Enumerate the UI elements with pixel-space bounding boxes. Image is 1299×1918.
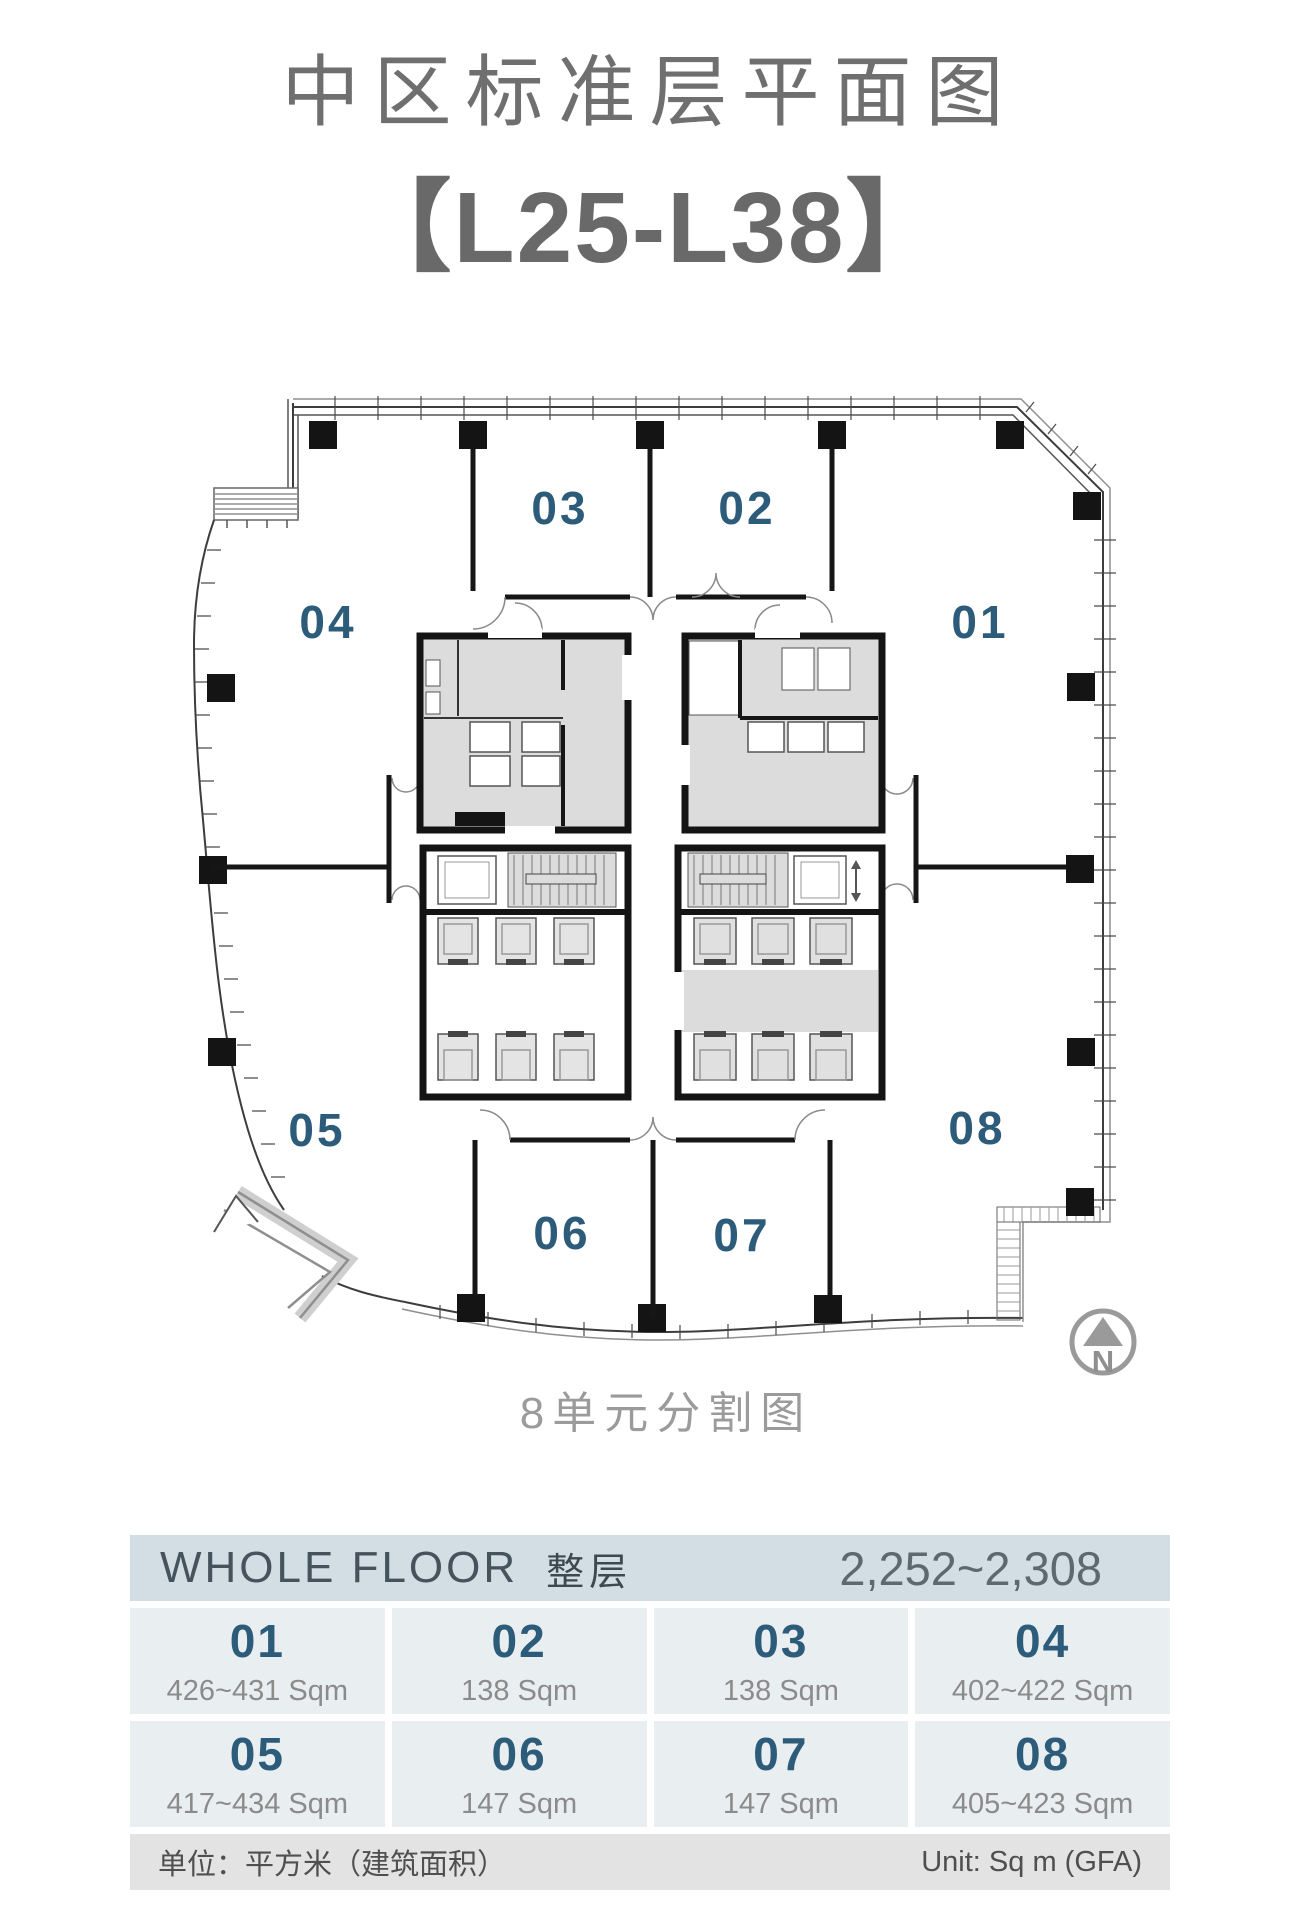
unit-number: 06: [492, 1727, 547, 1781]
page: 中区标准层平面图 【L25-L38】: [0, 0, 1299, 1918]
unit-number: 04: [1015, 1614, 1070, 1668]
unit-cell-02: 02 138 Sqm: [392, 1608, 647, 1714]
unit-cell-08: 08 405~423 Sqm: [915, 1721, 1170, 1827]
unit-note-zh: 单位：平方米（建筑面积）: [158, 1841, 506, 1883]
whole-floor-range: 2,252~2,308: [839, 1541, 1102, 1596]
unit-area: 147 Sqm: [461, 1788, 577, 1821]
unit-area: 405~423 Sqm: [952, 1788, 1133, 1821]
table-footer-row: 单位：平方米（建筑面积） Unit: Sq m (GFA): [130, 1834, 1170, 1890]
unit-label-07: 07: [713, 1209, 770, 1261]
unit-cell-05: 05 417~434 Sqm: [130, 1721, 385, 1827]
core-lower-right: [672, 848, 882, 1097]
unit-cell-01: 01 426~431 Sqm: [130, 1608, 385, 1714]
unit-cell-07: 07 147 Sqm: [654, 1721, 909, 1827]
unit-label-06: 06: [533, 1207, 590, 1259]
unit-label-08: 08: [948, 1102, 1005, 1154]
plan-caption: 8单元分割图: [520, 1389, 812, 1438]
unit-area: 426~431 Sqm: [167, 1675, 348, 1708]
unit-cell-04: 04 402~422 Sqm: [915, 1608, 1170, 1714]
core-upper-left: [420, 628, 632, 836]
unit-number: 05: [230, 1727, 285, 1781]
unit-label-01: 01: [951, 596, 1008, 648]
unit-area: 417~434 Sqm: [167, 1788, 348, 1821]
unit-cell-06: 06 147 Sqm: [392, 1721, 647, 1827]
unit-note-en: Unit: Sq m (GFA): [921, 1846, 1142, 1879]
table-header-row: WHOLE FLOOR 整层 2,252~2,308: [130, 1535, 1170, 1601]
unit-number: 08: [1015, 1727, 1070, 1781]
partition-walls: [213, 449, 1068, 1318]
unit-area: 138 Sqm: [461, 1675, 577, 1708]
unit-area: 147 Sqm: [723, 1788, 839, 1821]
stair-right: [688, 853, 788, 907]
entrance-chevron: [214, 1192, 348, 1318]
unit-number: 03: [753, 1614, 808, 1668]
unit-label-05: 05: [288, 1104, 345, 1156]
unit-label-04: 04: [299, 596, 356, 648]
unit-area: 138 Sqm: [723, 1675, 839, 1708]
area-table: WHOLE FLOOR 整层 2,252~2,308 01 426~431 Sq…: [130, 1535, 1170, 1890]
unit-label-03: 03: [531, 482, 588, 534]
notch-hatch: [997, 1207, 1100, 1320]
unit-number: 02: [492, 1614, 547, 1668]
whole-floor-label-zh: 整层: [546, 1541, 632, 1596]
unit-grid-row-2: 05 417~434 Sqm 06 147 Sqm 07 147 Sqm 08 …: [130, 1721, 1170, 1827]
unit-number: 07: [753, 1727, 808, 1781]
lift-lobby-corridor: [682, 970, 878, 1032]
unit-label-02: 02: [718, 482, 775, 534]
unit-number: 01: [230, 1614, 285, 1668]
core-upper-right: [680, 628, 882, 830]
unit-grid-row-1: 01 426~431 Sqm 02 138 Sqm 03 138 Sqm 04 …: [130, 1608, 1170, 1714]
stair-left: [508, 853, 616, 907]
unit-cell-03: 03 138 Sqm: [654, 1608, 909, 1714]
unit-area: 402~422 Sqm: [952, 1675, 1133, 1708]
core-lower-left: [423, 848, 628, 1097]
whole-floor-label-en: WHOLE FLOOR: [160, 1543, 518, 1593]
north-letter: N: [1092, 1344, 1114, 1379]
north-arrow-icon: N: [1072, 1311, 1134, 1379]
